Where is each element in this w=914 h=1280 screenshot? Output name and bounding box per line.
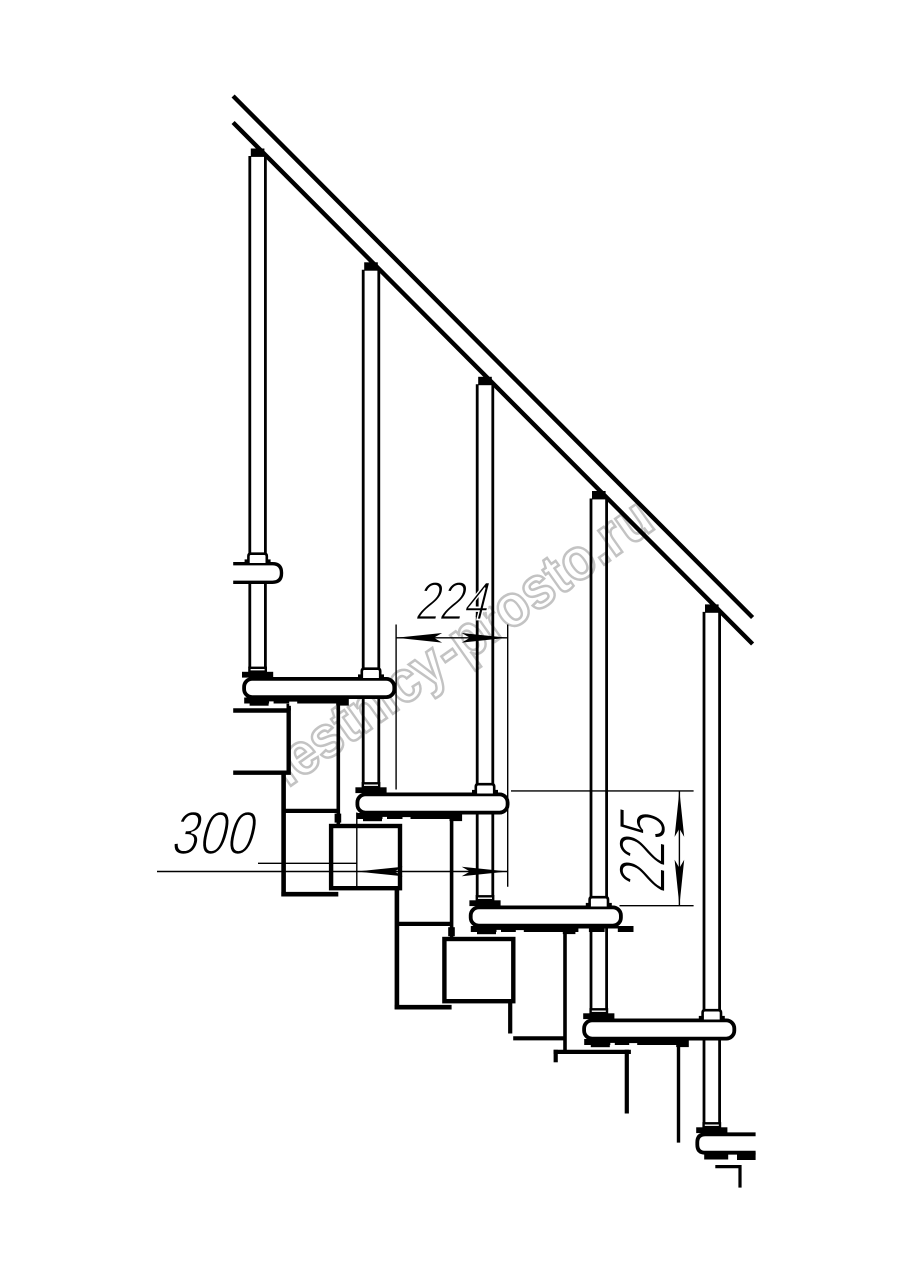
svg-text:300: 300 bbox=[166, 800, 265, 868]
svg-text:224: 224 bbox=[411, 570, 498, 631]
